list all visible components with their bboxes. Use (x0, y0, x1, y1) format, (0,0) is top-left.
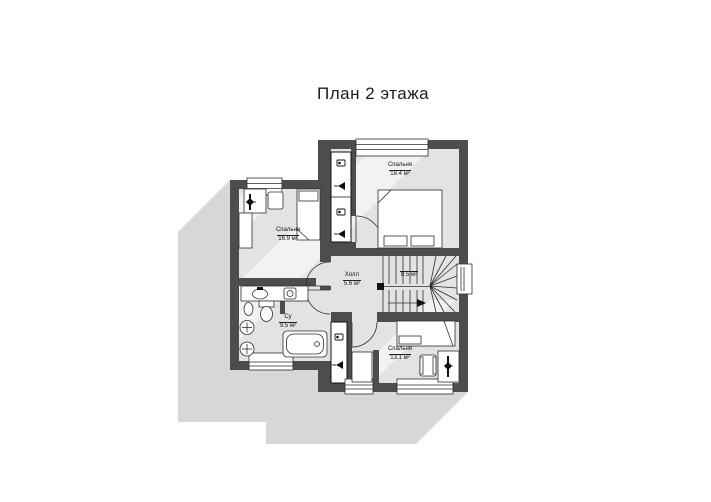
pillow (299, 191, 318, 201)
bedroom-top-furniture (378, 190, 442, 248)
room-label-bedroom-left: Спальня 16.9 м² (266, 227, 310, 244)
vent-shaft-2 (331, 322, 347, 383)
round-fixture-icon (240, 342, 254, 356)
stair-window (457, 264, 472, 294)
room-name: Холл (330, 272, 374, 280)
vent-duct-icon (337, 160, 345, 166)
closet (352, 352, 372, 382)
desk-chair (268, 192, 283, 209)
vent-shaft-1 (331, 152, 351, 242)
room-name: Спальня (266, 227, 310, 235)
vent-duct-icon (335, 334, 343, 340)
round-fixture-icon (240, 321, 254, 335)
room-area: 13.1 м² (389, 354, 410, 363)
bathtub-icon (283, 331, 327, 357)
room-area: 9.5 м² (279, 322, 297, 331)
window (356, 139, 428, 156)
floor-plan-page: План 2 этажа Спальня 18.4 м² Спальня 16.… (0, 0, 711, 502)
vanity-counter (241, 286, 308, 301)
room-area: 8.5 м² (400, 271, 418, 280)
vent-duct-icon (337, 209, 345, 215)
room-name: Су (266, 314, 310, 322)
room-label-bathroom: Су 9.5 м² (266, 314, 310, 331)
room-area: 18.4 м² (389, 170, 410, 179)
wardrobe (239, 213, 252, 248)
room-area: 16.9 м² (277, 235, 298, 244)
room-label-bedroom-top: Спальня 18.4 м² (378, 162, 422, 179)
room-area: 5.6 м² (343, 280, 361, 289)
room-name: Спальня (378, 346, 422, 354)
stair-newel (377, 283, 384, 290)
water-heater-icon (284, 288, 296, 299)
room-label-stairs: 8.5 м² (387, 271, 431, 280)
room-label-hall: Холл 5.6 м² (330, 272, 374, 289)
floor-plan-drawing (0, 0, 711, 502)
pillow (399, 336, 421, 344)
room-label-bedroom-bottom: Спальня 13.1 м² (378, 346, 422, 363)
pillow (384, 236, 407, 246)
bidet-icon (244, 303, 253, 316)
pillow (411, 236, 434, 246)
room-name: Спальня (378, 162, 422, 170)
page-title: План 2 этажа (317, 84, 427, 104)
